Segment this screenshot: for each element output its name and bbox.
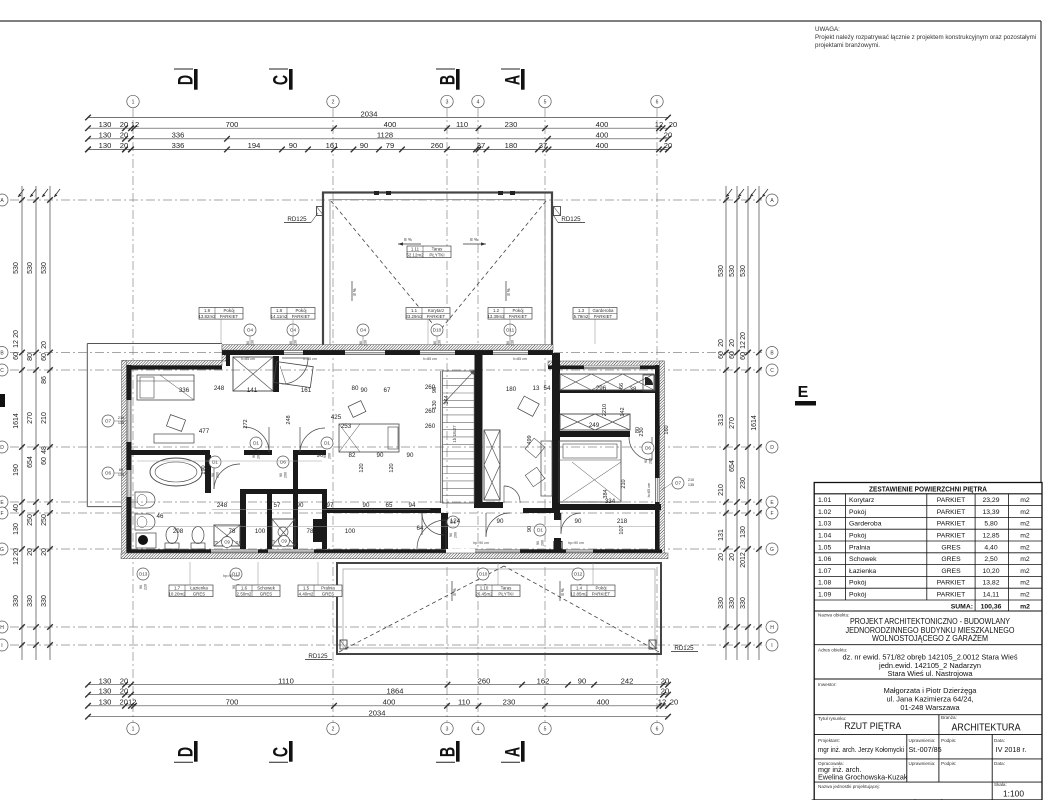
svg-text:2012: 2012 [740, 552, 747, 568]
svg-text:200: 200 [649, 458, 653, 464]
svg-text:130: 130 [99, 120, 112, 129]
svg-text:14,11: 14,11 [983, 592, 1000, 599]
svg-text:C: C [770, 368, 774, 374]
svg-text:336: 336 [172, 131, 185, 140]
svg-text:530: 530 [729, 265, 736, 277]
svg-text:13.39m2: 13.39m2 [487, 314, 505, 319]
svg-text:20: 20 [729, 339, 736, 347]
svg-text:330: 330 [13, 595, 20, 607]
svg-text:Data:: Data: [994, 738, 1005, 743]
svg-text:330: 330 [41, 595, 48, 607]
svg-text:110: 110 [292, 540, 298, 544]
svg-text:13.82m2: 13.82m2 [198, 314, 216, 319]
svg-text:PARKIET: PARKIET [937, 592, 966, 599]
svg-text:530: 530 [41, 262, 48, 274]
svg-text:m2: m2 [1020, 544, 1030, 551]
svg-text:190: 190 [241, 510, 247, 519]
svg-text:1614: 1614 [751, 415, 758, 431]
svg-text:3: 3 [446, 726, 449, 732]
svg-text:400: 400 [596, 131, 609, 140]
svg-text:5,80: 5,80 [984, 521, 997, 528]
svg-text:12: 12 [655, 120, 663, 129]
svg-text:190: 190 [201, 465, 207, 474]
svg-text:D: D [770, 445, 774, 451]
svg-text:I: I [771, 643, 772, 649]
svg-text:B: B [436, 75, 460, 85]
svg-text:mgr inż. arch. Jerzy Kołomycki: mgr inż. arch. Jerzy Kołomycki [818, 745, 904, 754]
svg-text:1: 1 [132, 99, 135, 105]
svg-text:A: A [501, 747, 525, 757]
svg-text:530: 530 [13, 262, 20, 274]
svg-text:Pokój: Pokój [849, 533, 866, 540]
svg-text:86: 86 [41, 376, 48, 384]
svg-text:90: 90 [644, 459, 648, 463]
svg-text:249: 249 [589, 422, 600, 429]
svg-text:D10: D10 [433, 328, 442, 333]
svg-text:1.7: 1.7 [174, 586, 181, 591]
svg-text:PARKIET: PARKIET [220, 314, 239, 319]
svg-text:54: 54 [544, 385, 551, 392]
svg-text:1.05: 1.05 [818, 544, 831, 551]
svg-text:m2: m2 [1020, 533, 1030, 540]
svg-text:210: 210 [41, 412, 48, 424]
svg-text:8 %: 8 % [470, 237, 478, 242]
svg-text:90: 90 [317, 452, 324, 459]
svg-text:230: 230 [740, 477, 747, 489]
svg-text:1.06: 1.06 [818, 556, 831, 563]
svg-text:90: 90 [139, 585, 143, 589]
svg-text:1110: 1110 [278, 677, 294, 686]
svg-text:67: 67 [384, 387, 391, 394]
svg-text:20: 20 [718, 339, 725, 347]
svg-text:Projekt należy rozpatrywać łąc: Projekt należy rozpatrywać łącznie z pro… [815, 34, 1036, 41]
svg-text:272: 272 [243, 419, 249, 428]
svg-text:H: H [0, 625, 4, 631]
svg-text:D6: D6 [280, 460, 286, 465]
svg-text:C: C [269, 747, 293, 757]
svg-text:m2: m2 [1020, 592, 1030, 599]
svg-text:180: 180 [506, 386, 517, 393]
svg-text:Pralnia: Pralnia [849, 544, 870, 551]
svg-text:Inwestor:: Inwestor: [818, 682, 837, 687]
svg-text:m2: m2 [1020, 603, 1030, 610]
svg-text:208: 208 [173, 528, 184, 535]
svg-text:12,85: 12,85 [982, 533, 999, 540]
svg-text:4,40: 4,40 [984, 544, 997, 551]
svg-text:8 %: 8 % [506, 288, 511, 295]
svg-text:F: F [0, 511, 3, 517]
svg-text:90: 90 [578, 677, 586, 686]
svg-text:F: F [770, 511, 773, 517]
svg-text:107: 107 [619, 525, 625, 534]
svg-text:296: 296 [596, 385, 607, 392]
svg-text:60: 60 [41, 353, 48, 361]
svg-text:Korytarz: Korytarz [849, 497, 875, 504]
svg-text:Nazwa obiektu:: Nazwa obiektu: [818, 612, 849, 617]
svg-text:SUMA:: SUMA: [951, 603, 973, 610]
svg-text:210: 210 [688, 478, 694, 482]
svg-text:G: G [0, 547, 4, 553]
svg-text:100,36: 100,36 [981, 603, 1002, 610]
svg-text:GRES: GRES [260, 592, 273, 597]
svg-text:80: 80 [352, 385, 359, 392]
svg-text:1.2: 1.2 [493, 308, 500, 313]
svg-text:Podpis:: Podpis: [941, 761, 956, 766]
svg-text:248: 248 [217, 502, 228, 509]
svg-text:2210: 2210 [602, 404, 608, 416]
svg-text:Pokój: Pokój [224, 308, 235, 313]
svg-text:242: 242 [621, 677, 634, 686]
svg-text:80: 80 [27, 353, 34, 361]
svg-text:130: 130 [99, 687, 112, 696]
svg-text:90: 90 [279, 473, 283, 477]
svg-text:330: 330 [729, 597, 736, 609]
svg-text:135: 135 [118, 421, 124, 425]
svg-text:hp=90 cm: hp=90 cm [568, 541, 584, 545]
svg-text:PARKIET: PARKIET [594, 314, 613, 319]
svg-text:GRES: GRES [193, 592, 206, 597]
svg-text:230: 230 [503, 698, 516, 707]
svg-text:GRES: GRES [322, 592, 335, 597]
svg-text:654: 654 [729, 460, 736, 472]
svg-text:79: 79 [386, 141, 394, 150]
svg-text:D1: D1 [253, 441, 259, 446]
svg-text:8 %: 8 % [352, 288, 357, 295]
svg-text:20: 20 [120, 677, 128, 686]
svg-text:210: 210 [718, 484, 725, 496]
svg-text:C: C [269, 75, 293, 85]
svg-text:Nazwa jednostki projektującej:: Nazwa jednostki projektującej: [818, 784, 880, 789]
svg-text:1.8: 1.8 [276, 308, 283, 313]
svg-text:124: 124 [450, 518, 461, 525]
svg-text:60: 60 [740, 352, 747, 360]
svg-text:700: 700 [226, 698, 239, 707]
svg-text:250: 250 [27, 514, 34, 526]
svg-text:100: 100 [345, 528, 356, 535]
svg-text:2: 2 [332, 99, 335, 105]
svg-text:WOLNOSTOJĄCEGO Z GARAŻEM: WOLNOSTOJĄCEGO Z GARAŻEM [872, 633, 988, 643]
svg-text:75: 75 [271, 540, 275, 544]
svg-text:499: 499 [527, 435, 533, 444]
svg-text:250: 250 [41, 514, 48, 526]
svg-text:Pokój: Pokój [296, 308, 307, 313]
svg-text:20: 20 [120, 687, 128, 696]
svg-text:14.11m2: 14.11m2 [271, 314, 288, 319]
svg-text:Pokój: Pokój [849, 580, 866, 587]
svg-text:90: 90 [527, 526, 533, 532]
svg-text:130: 130 [99, 677, 112, 686]
svg-text:66: 66 [619, 383, 625, 389]
svg-text:110: 110 [235, 541, 241, 545]
svg-text:20: 20 [669, 120, 677, 129]
svg-text:200: 200 [541, 540, 545, 546]
svg-text:A: A [501, 75, 525, 85]
svg-text:90: 90 [211, 473, 215, 477]
svg-text:336: 336 [179, 387, 190, 394]
svg-text:270: 270 [27, 412, 34, 424]
svg-text:248: 248 [286, 415, 292, 424]
svg-text:477: 477 [199, 428, 210, 435]
svg-text:D: D [174, 747, 198, 757]
svg-text:1.9: 1.9 [204, 308, 211, 313]
svg-text:90: 90 [246, 341, 250, 345]
svg-text:m2: m2 [1020, 568, 1030, 575]
svg-text:1.3: 1.3 [578, 308, 585, 313]
svg-text:330: 330 [718, 597, 725, 609]
svg-text:230: 230 [505, 120, 518, 129]
svg-text:Skala:: Skala: [994, 782, 1007, 787]
svg-text:O9: O9 [224, 540, 230, 545]
svg-text:PARKIET: PARKIET [937, 521, 966, 528]
svg-text:248: 248 [214, 385, 225, 392]
svg-text:1.08: 1.08 [818, 580, 831, 587]
svg-text:Łazienka: Łazienka [849, 568, 876, 575]
svg-text:10,20: 10,20 [982, 568, 999, 575]
svg-text:m2: m2 [1020, 580, 1030, 587]
svg-text:384: 384 [603, 489, 609, 498]
svg-text:Adres obiektu:: Adres obiektu: [818, 647, 847, 652]
svg-text:1.10: 1.10 [480, 586, 489, 591]
svg-text:5.79m2: 5.79m2 [574, 314, 589, 319]
svg-text:130: 130 [251, 340, 255, 346]
svg-text:2012: 2012 [120, 698, 137, 707]
svg-text:64: 64 [417, 525, 424, 532]
svg-text:Pokój: Pokój [596, 586, 607, 591]
svg-text:O6: O6 [105, 471, 112, 476]
svg-text:270: 270 [729, 417, 736, 429]
svg-text:20: 20 [661, 677, 669, 686]
svg-text:O12: O12 [574, 572, 583, 577]
svg-text:Branża:: Branża: [941, 715, 957, 720]
svg-text:52.12m2: 52.12m2 [406, 253, 424, 258]
svg-text:530: 530 [740, 265, 747, 277]
svg-text:RD125: RD125 [308, 653, 328, 660]
svg-text:01-248 Warszawa: 01-248 Warszawa [900, 703, 960, 712]
svg-text:St.-007/85: St.-007/85 [909, 745, 942, 754]
svg-text:130: 130 [99, 141, 112, 150]
svg-text:O4: O4 [247, 328, 254, 333]
svg-text:78: 78 [229, 528, 236, 535]
svg-text:O7: O7 [675, 481, 682, 486]
svg-text:200: 200 [328, 453, 332, 459]
svg-text:Pralnia: Pralnia [321, 586, 335, 591]
svg-text:90: 90 [297, 502, 304, 509]
svg-text:Garderoba: Garderoba [593, 308, 615, 313]
svg-text:100: 100 [255, 528, 266, 535]
svg-text:PARKIET: PARKIET [427, 314, 446, 319]
svg-text:40: 40 [13, 504, 20, 512]
svg-text:425: 425 [331, 414, 342, 421]
svg-text:400: 400 [596, 120, 609, 129]
svg-text:G: G [770, 547, 774, 553]
svg-text:260: 260 [478, 677, 491, 686]
svg-text:Garderoba: Garderoba [849, 521, 882, 528]
svg-text:Schowek: Schowek [849, 556, 877, 563]
svg-text:120: 120 [389, 463, 395, 472]
svg-text:2034: 2034 [369, 709, 386, 718]
svg-text:37: 37 [539, 141, 547, 150]
svg-text:Taras: Taras [501, 586, 513, 591]
svg-text:PARKIET: PARKIET [937, 580, 966, 587]
svg-text:200: 200 [284, 472, 288, 478]
svg-text:D1: D1 [324, 441, 330, 446]
svg-text:400: 400 [596, 141, 609, 150]
svg-text:Projektant:: Projektant: [818, 738, 840, 743]
svg-text:m2: m2 [1020, 521, 1030, 528]
svg-text:130: 130 [99, 698, 112, 707]
svg-text:130: 130 [364, 340, 368, 346]
svg-text:90: 90 [359, 341, 363, 345]
svg-text:135: 135 [688, 483, 694, 487]
svg-text:400: 400 [597, 698, 610, 707]
svg-text:RD125: RD125 [561, 216, 581, 223]
svg-text:38: 38 [630, 386, 637, 393]
svg-text:210: 210 [621, 479, 627, 488]
svg-text:90: 90 [232, 585, 236, 589]
svg-text:1: 1 [132, 726, 135, 732]
svg-text:1b 18x27: 1b 18x27 [452, 425, 457, 443]
svg-text:65: 65 [386, 502, 393, 509]
svg-text:190: 190 [294, 510, 300, 519]
svg-text:PŁYTKI: PŁYTKI [498, 592, 513, 597]
svg-text:RD125: RD125 [287, 216, 307, 223]
svg-text:110: 110 [456, 120, 468, 129]
svg-text:130: 130 [294, 340, 298, 346]
svg-text:8 %: 8 % [452, 588, 457, 595]
svg-text:1.07: 1.07 [818, 568, 831, 575]
svg-text:20: 20 [13, 330, 20, 338]
svg-text:90: 90 [252, 454, 256, 458]
svg-text:8 %: 8 % [560, 588, 565, 595]
svg-text:Pokój: Pokój [513, 308, 524, 313]
svg-text:20: 20 [664, 141, 672, 150]
svg-text:B: B [436, 747, 460, 757]
svg-text:5: 5 [544, 726, 547, 732]
svg-text:2034: 2034 [361, 109, 378, 118]
svg-text:20: 20 [120, 131, 128, 140]
svg-text:PŁYTKI: PŁYTKI [429, 253, 444, 258]
svg-text:142: 142 [620, 407, 626, 416]
svg-text:37: 37 [477, 141, 485, 150]
svg-text:90: 90 [575, 518, 582, 525]
svg-text:90: 90 [506, 341, 510, 345]
svg-text:130: 130 [432, 400, 438, 409]
svg-text:10.20m2: 10.20m2 [168, 592, 186, 597]
svg-text:1.11: 1.11 [411, 247, 420, 252]
svg-text:161: 161 [301, 387, 312, 394]
svg-text:130: 130 [99, 131, 112, 140]
svg-text:12: 12 [658, 698, 666, 707]
svg-text:20: 20 [740, 332, 747, 340]
svg-text:h=85 cm: h=85 cm [241, 357, 255, 361]
svg-text:20: 20 [120, 120, 128, 129]
svg-text:Data:: Data: [994, 761, 1005, 766]
svg-text:20: 20 [729, 553, 736, 561]
svg-text:200: 200 [454, 532, 458, 538]
svg-text:313: 313 [718, 414, 725, 426]
svg-text:20: 20 [41, 341, 48, 349]
svg-text:130: 130 [13, 523, 20, 535]
svg-text:I: I [1, 643, 2, 649]
svg-text:O10: O10 [479, 572, 488, 577]
svg-text:220: 220 [144, 584, 148, 590]
svg-text:90: 90 [497, 518, 504, 525]
svg-text:D1: D1 [212, 460, 218, 465]
svg-text:m2: m2 [1020, 509, 1030, 516]
svg-text:20: 20 [13, 548, 20, 556]
svg-text:2: 2 [332, 726, 335, 732]
svg-text:1.5: 1.5 [303, 586, 310, 591]
svg-text:75: 75 [214, 541, 218, 545]
svg-text:20: 20 [27, 548, 34, 556]
svg-text:h=65 cm: h=65 cm [647, 483, 651, 498]
svg-text:IV 2018 r.: IV 2018 r. [996, 745, 1027, 754]
svg-text:O13: O13 [139, 572, 148, 577]
svg-text:4: 4 [477, 99, 480, 105]
svg-text:162: 162 [537, 677, 550, 686]
svg-text:E: E [798, 384, 809, 401]
svg-text:60: 60 [13, 352, 20, 360]
svg-text:344: 344 [444, 395, 450, 404]
svg-text:H: H [770, 625, 774, 631]
svg-text:90: 90 [407, 452, 414, 459]
svg-text:253: 253 [341, 423, 352, 430]
svg-text:260: 260 [425, 423, 436, 430]
svg-text:Korytarz: Korytarz [428, 308, 444, 313]
svg-text:4.40m2: 4.40m2 [299, 592, 314, 597]
svg-text:O4: O4 [360, 328, 367, 333]
svg-text:202: 202 [656, 425, 662, 434]
svg-text:GRES: GRES [941, 568, 961, 575]
svg-text:Łazienka: Łazienka [190, 586, 208, 591]
svg-text:90: 90 [377, 452, 384, 459]
svg-text:ZESTAWIENIE POWIERZCHNI PIĘTRA: ZESTAWIENIE POWIERZCHNI PIĘTRA [869, 484, 987, 493]
svg-text:1614: 1614 [13, 413, 20, 429]
svg-text:PARKIET: PARKIET [937, 533, 966, 540]
svg-text:20: 20 [661, 687, 669, 696]
svg-text:46: 46 [157, 513, 164, 520]
svg-text:12: 12 [740, 341, 747, 349]
svg-text:90: 90 [449, 533, 453, 537]
svg-text:12: 12 [13, 557, 20, 565]
svg-text:90: 90 [432, 387, 438, 393]
svg-text:57: 57 [274, 502, 281, 509]
svg-text:48: 48 [41, 446, 48, 454]
svg-text:23,29: 23,29 [982, 497, 999, 504]
svg-text:60: 60 [718, 351, 725, 359]
svg-text:1.4: 1.4 [576, 586, 583, 591]
svg-text:h=85 cm: h=85 cm [423, 357, 437, 361]
svg-text:700: 700 [226, 120, 239, 129]
svg-text:23.29m2: 23.29m2 [405, 314, 423, 319]
svg-text:20: 20 [664, 131, 672, 140]
svg-text:20: 20 [670, 698, 678, 707]
svg-text:260: 260 [431, 141, 444, 150]
svg-text:230: 230 [639, 427, 645, 436]
svg-text:O9: O9 [281, 539, 287, 544]
svg-text:Podpis:: Podpis: [941, 738, 956, 743]
svg-text:110: 110 [458, 698, 470, 707]
svg-text:Uprawnienia:: Uprawnienia: [909, 761, 936, 766]
svg-text:Ewelina Grochowska-Kuzak: Ewelina Grochowska-Kuzak [818, 772, 908, 781]
svg-text:1.04: 1.04 [818, 533, 831, 540]
svg-text:12.85m2: 12.85m2 [570, 592, 588, 597]
svg-text:330: 330 [27, 595, 34, 607]
svg-text:20: 20 [41, 548, 48, 556]
svg-text:D: D [174, 75, 198, 85]
svg-text:1.02: 1.02 [818, 509, 831, 516]
svg-text:PARKIET: PARKIET [509, 314, 528, 319]
